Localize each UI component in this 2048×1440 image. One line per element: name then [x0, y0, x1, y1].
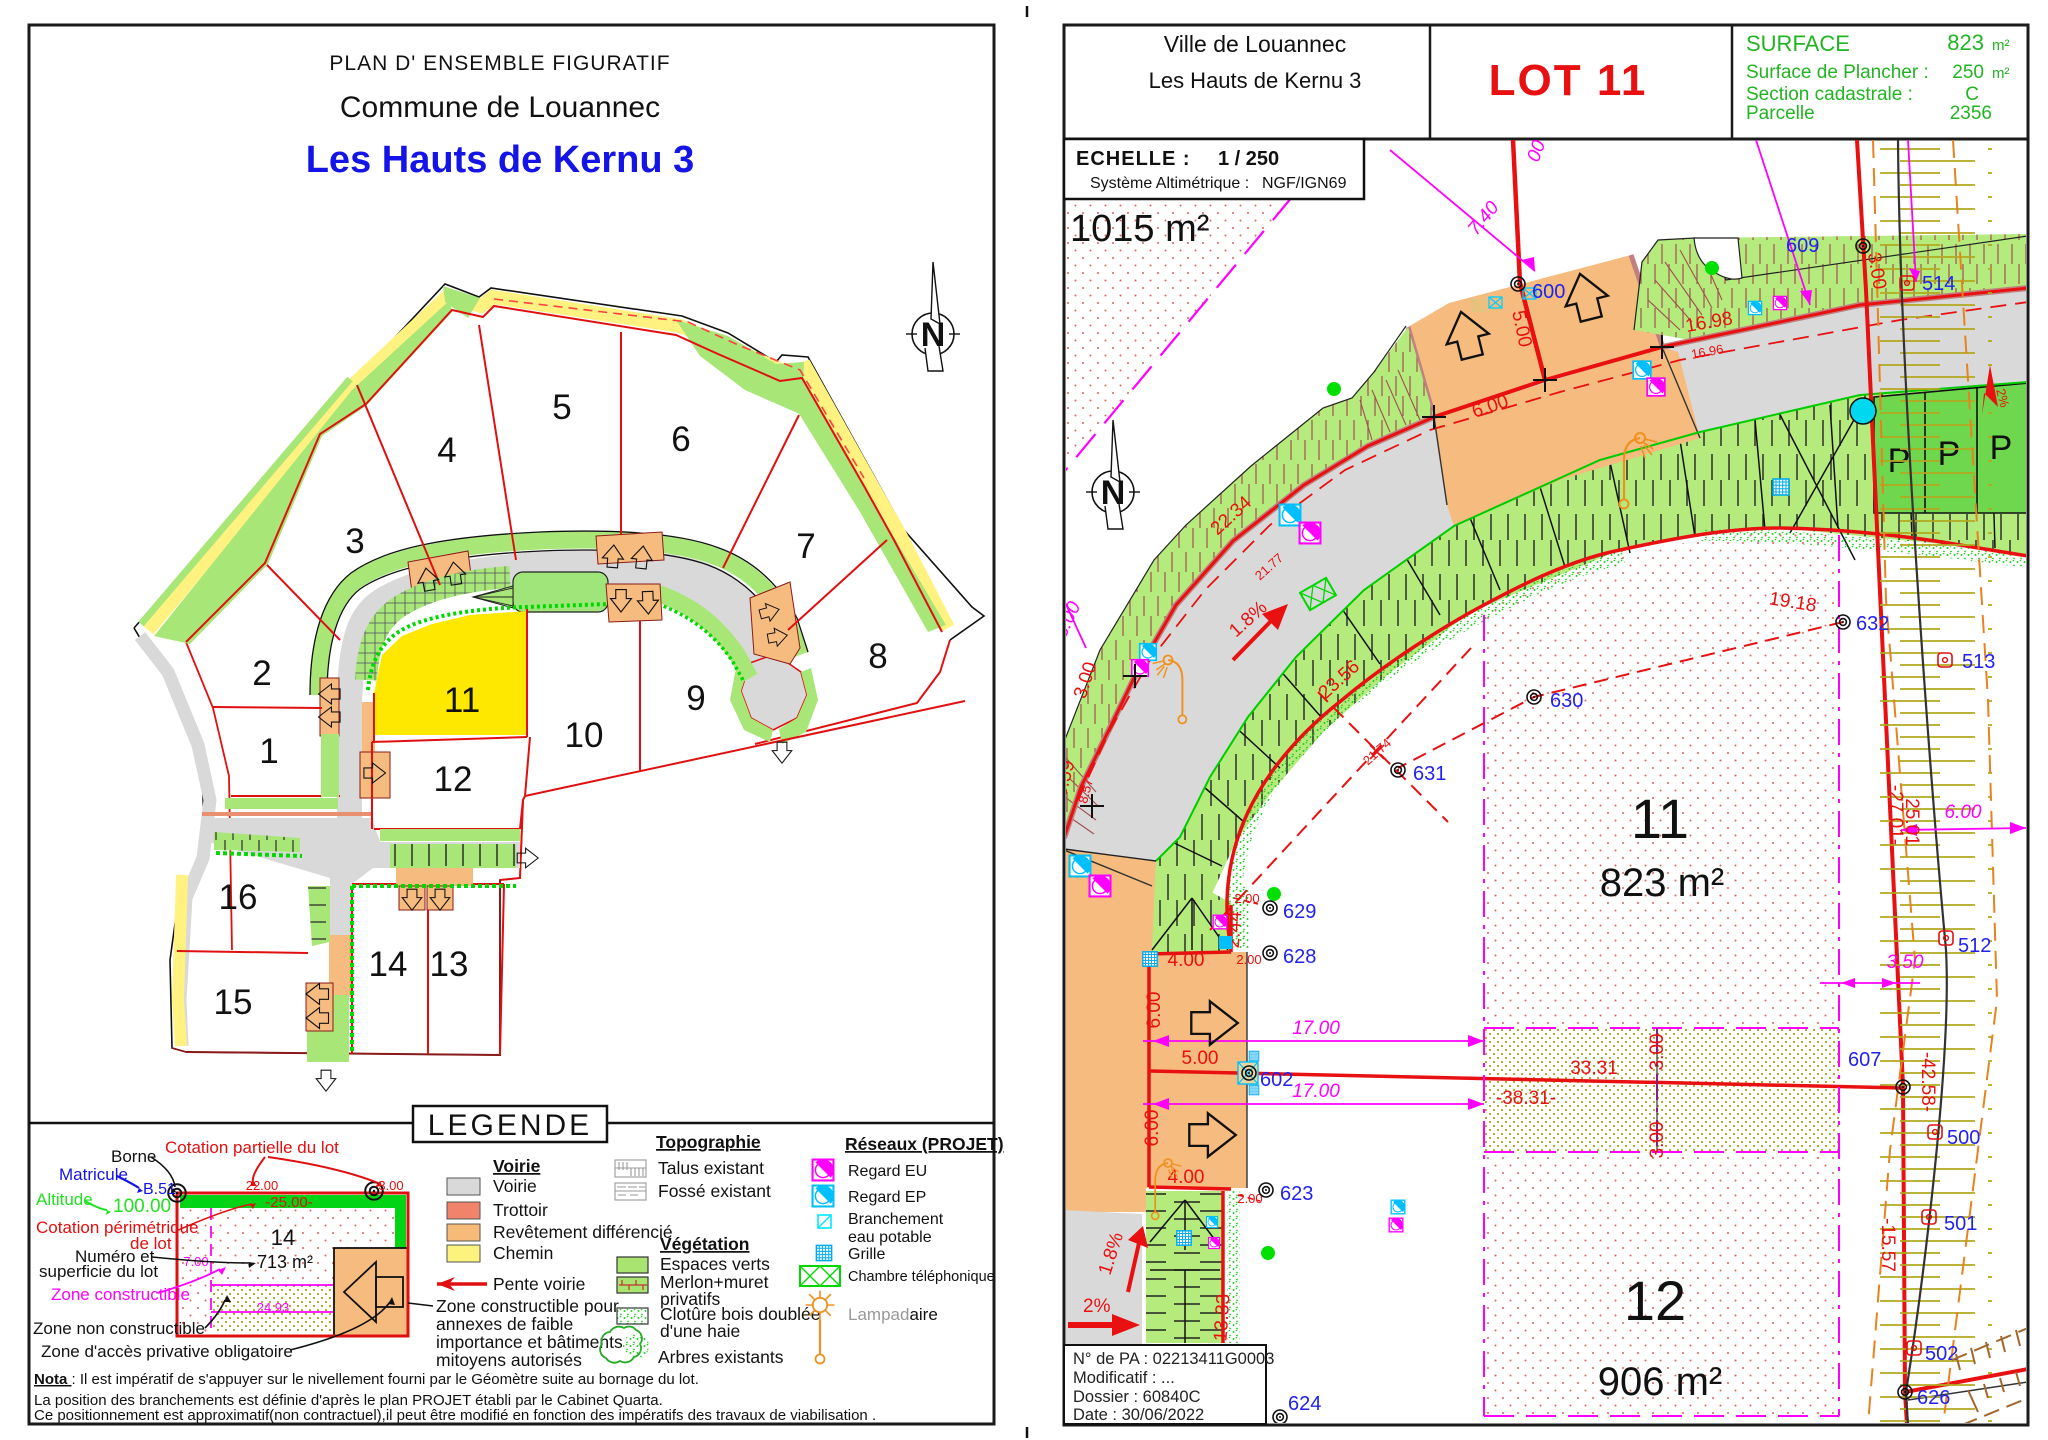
svg-text:Zone constructible pour: Zone constructible pour	[436, 1296, 619, 1316]
svg-text:importance et bâtiments: importance et bâtiments	[436, 1332, 623, 1352]
svg-text:Système Altimétrique :: Système Altimétrique :	[1090, 175, 1249, 192]
svg-text:Les Hauts de Kernu 3: Les Hauts de Kernu 3	[306, 139, 695, 181]
svg-text:Fossé existant: Fossé existant	[658, 1181, 771, 1201]
svg-text:2356: 2356	[1950, 103, 1992, 124]
svg-text:10: 10	[565, 716, 604, 755]
svg-text:d'une haie: d'une haie	[660, 1321, 740, 1341]
svg-text:Commune de Louannec: Commune de Louannec	[340, 91, 660, 124]
svg-text:16: 16	[219, 878, 258, 917]
svg-text:13.33: 13.33	[1210, 1293, 1234, 1342]
svg-text:100.00: 100.00	[113, 1196, 171, 1217]
svg-text:609: 609	[1786, 235, 1819, 257]
svg-text:Les Hauts de Kernu 3: Les Hauts de Kernu 3	[1149, 68, 1362, 93]
svg-text:17.00: 17.00	[1292, 1018, 1340, 1039]
svg-text:-42.58-: -42.58-	[1917, 1052, 1938, 1112]
svg-text:PLAN D' ENSEMBLE FIGURATIF: PLAN D' ENSEMBLE FIGURATIF	[329, 52, 670, 75]
svg-text:500: 500	[1947, 1127, 1980, 1149]
svg-text:501: 501	[1944, 1213, 1977, 1235]
svg-text:15: 15	[214, 983, 253, 1022]
svg-text:1 / 250: 1 / 250	[1218, 148, 1279, 170]
svg-text:14: 14	[369, 945, 408, 984]
svg-text:24.93: 24.93	[257, 1300, 290, 1315]
svg-text:annexes de faible: annexes de faible	[436, 1314, 573, 1334]
svg-text:6.00: 6.00	[1945, 802, 1982, 823]
svg-text:624: 624	[1288, 1393, 1321, 1415]
svg-text:m²: m²	[1992, 37, 2010, 54]
svg-text:713 m²: 713 m²	[257, 1252, 313, 1272]
svg-text:823: 823	[1947, 30, 1984, 55]
svg-text:Date : 30/06/2022: Date : 30/06/2022	[1073, 1406, 1204, 1424]
svg-text:LEGENDE: LEGENDE	[428, 1109, 592, 1142]
svg-text:Chemin: Chemin	[493, 1243, 553, 1263]
svg-text:-38.31-: -38.31-	[1496, 1088, 1556, 1109]
svg-text:607: 607	[1848, 1049, 1881, 1071]
svg-text:3.50: 3.50	[1887, 952, 1924, 973]
svg-text:Végétation: Végétation	[660, 1234, 749, 1254]
svg-text:2.00: 2.00	[1234, 891, 1259, 906]
svg-text:600: 600	[1532, 281, 1565, 303]
svg-text:3.00: 3.00	[1647, 1034, 1668, 1071]
svg-text:25.01: 25.01	[1901, 798, 1922, 846]
svg-text:m²: m²	[1992, 65, 2010, 82]
svg-text:623: 623	[1280, 1183, 1313, 1205]
svg-text:Arbres existants: Arbres existants	[658, 1347, 784, 1367]
svg-text:4: 4	[437, 431, 456, 470]
svg-text:Zone constructible: Zone constructible	[51, 1285, 190, 1304]
svg-text:514: 514	[1922, 273, 1955, 295]
svg-text:Parcelle: Parcelle	[1746, 103, 1815, 124]
svg-text:Réseaux (PROJET): Réseaux (PROJET)	[845, 1134, 1004, 1154]
svg-text:-15.57: -15.57	[1877, 1218, 1898, 1272]
svg-text:6: 6	[671, 420, 690, 459]
svg-text:-25.00-: -25.00-	[265, 1194, 313, 1211]
svg-text:2.00: 2.00	[1236, 952, 1261, 967]
svg-text:512: 512	[1958, 935, 1991, 957]
svg-text:Regard EP: Regard EP	[848, 1189, 926, 1206]
svg-text:3: 3	[345, 522, 364, 561]
svg-text:1: 1	[259, 732, 278, 771]
svg-text:8: 8	[868, 637, 887, 676]
svg-text:N: N	[921, 316, 946, 354]
svg-text:629: 629	[1283, 901, 1316, 923]
svg-text:5.00: 5.00	[1182, 1048, 1219, 1069]
svg-text:3.00: 3.00	[378, 1178, 403, 1193]
svg-text:823 m²: 823 m²	[1600, 861, 1725, 905]
svg-text:11: 11	[1631, 787, 1689, 850]
svg-text:1015 m²: 1015 m²	[1070, 208, 1209, 250]
svg-text:SURFACE: SURFACE	[1746, 31, 1850, 56]
svg-text:Chambre téléphonique: Chambre téléphonique	[848, 1269, 995, 1285]
svg-text:630: 630	[1550, 690, 1583, 712]
svg-text:Ce positionnement est approxim: Ce positionnement est approximatif(non c…	[34, 1407, 876, 1424]
svg-text:Topographie: Topographie	[656, 1132, 761, 1152]
svg-text:628: 628	[1283, 946, 1316, 968]
svg-text:Cotation partielle du lot: Cotation partielle du lot	[165, 1138, 339, 1157]
svg-text:12: 12	[434, 760, 473, 799]
svg-text:superficie du lot: superficie du lot	[39, 1262, 158, 1281]
svg-text:502: 502	[1925, 1343, 1958, 1365]
svg-text:C: C	[1965, 84, 1979, 105]
svg-text:14: 14	[271, 1225, 295, 1250]
svg-text:11: 11	[444, 681, 480, 720]
svg-text:Ville de Louannec: Ville de Louannec	[1164, 31, 1346, 57]
svg-text:P: P	[1990, 429, 2013, 467]
svg-text:Dossier : 60840C: Dossier : 60840C	[1073, 1388, 1201, 1406]
svg-text:12: 12	[1624, 1269, 1686, 1332]
svg-text:631: 631	[1413, 763, 1446, 785]
svg-text:4.00: 4.00	[1168, 950, 1205, 971]
svg-text:N° de PA : 02213411G0003: N° de PA : 02213411G0003	[1073, 1350, 1274, 1368]
svg-text:17.00: 17.00	[1292, 1081, 1340, 1102]
svg-text:Talus existant: Talus existant	[658, 1158, 764, 1178]
svg-text:6.00: 6.00	[1144, 992, 1165, 1029]
svg-text:Lampadaire: Lampadaire	[848, 1305, 938, 1324]
svg-text:632: 632	[1856, 613, 1889, 635]
svg-text:Revêtement différencié: Revêtement différencié	[493, 1222, 673, 1242]
svg-text:Zone non constructible: Zone non constructible	[33, 1319, 205, 1338]
svg-text:2: 2	[252, 654, 271, 693]
svg-text:3.00: 3.00	[1647, 1122, 1668, 1159]
svg-text:N: N	[1101, 474, 1126, 512]
svg-text:LOT 11: LOT 11	[1489, 56, 1648, 105]
svg-text:5: 5	[552, 388, 571, 427]
svg-text:13: 13	[430, 945, 469, 984]
svg-text:906 m²: 906 m²	[1598, 1360, 1723, 1404]
svg-text:6.00: 6.00	[1142, 1110, 1163, 1147]
svg-text:2%: 2%	[1083, 1296, 1111, 1317]
svg-text:Voirie: Voirie	[493, 1176, 537, 1196]
svg-text:513: 513	[1962, 651, 1995, 673]
svg-text:2.00: 2.00	[1237, 1191, 1262, 1206]
svg-text:7: 7	[796, 527, 815, 566]
svg-text:250: 250	[1952, 62, 1984, 83]
svg-text:ECHELLE :: ECHELLE :	[1076, 148, 1191, 170]
svg-text:602: 602	[1260, 1069, 1293, 1091]
svg-text:33.31: 33.31	[1570, 1058, 1618, 1079]
svg-text:Voirie: Voirie	[493, 1156, 541, 1176]
svg-text:626: 626	[1917, 1387, 1950, 1409]
svg-text:Zone d'accès privative obligat: Zone d'accès privative obligatoire	[41, 1342, 293, 1361]
svg-text:Pente voirie: Pente voirie	[493, 1274, 585, 1294]
svg-text:Surface de Plancher :: Surface de Plancher :	[1746, 62, 1929, 83]
svg-text:Matricule: Matricule	[59, 1165, 128, 1184]
svg-text:Modificatif : ...: Modificatif : ...	[1073, 1369, 1175, 1387]
svg-text:eau potable: eau potable	[848, 1229, 932, 1246]
svg-text:9: 9	[686, 679, 705, 718]
svg-text:mitoyens autorisés: mitoyens autorisés	[436, 1350, 582, 1370]
svg-text:Section cadastrale :: Section cadastrale :	[1746, 84, 1913, 105]
svg-text:Borne: Borne	[111, 1147, 156, 1166]
svg-text:Branchement: Branchement	[848, 1211, 944, 1228]
svg-text:Trottoir: Trottoir	[493, 1200, 548, 1220]
svg-text:NGF/IGN69: NGF/IGN69	[1262, 175, 1347, 192]
svg-text:Espaces verts: Espaces verts	[660, 1254, 770, 1274]
svg-text:Regard EU: Regard EU	[848, 1163, 927, 1180]
svg-text:Cotation périmétrique: Cotation périmétrique	[36, 1218, 199, 1237]
svg-text:Altitude: Altitude	[36, 1190, 93, 1209]
svg-text:Nota : Il est impératif de s'a: Nota : Il est impératif de s'appuyer sur…	[34, 1371, 699, 1388]
svg-text:Grille: Grille	[848, 1246, 885, 1263]
